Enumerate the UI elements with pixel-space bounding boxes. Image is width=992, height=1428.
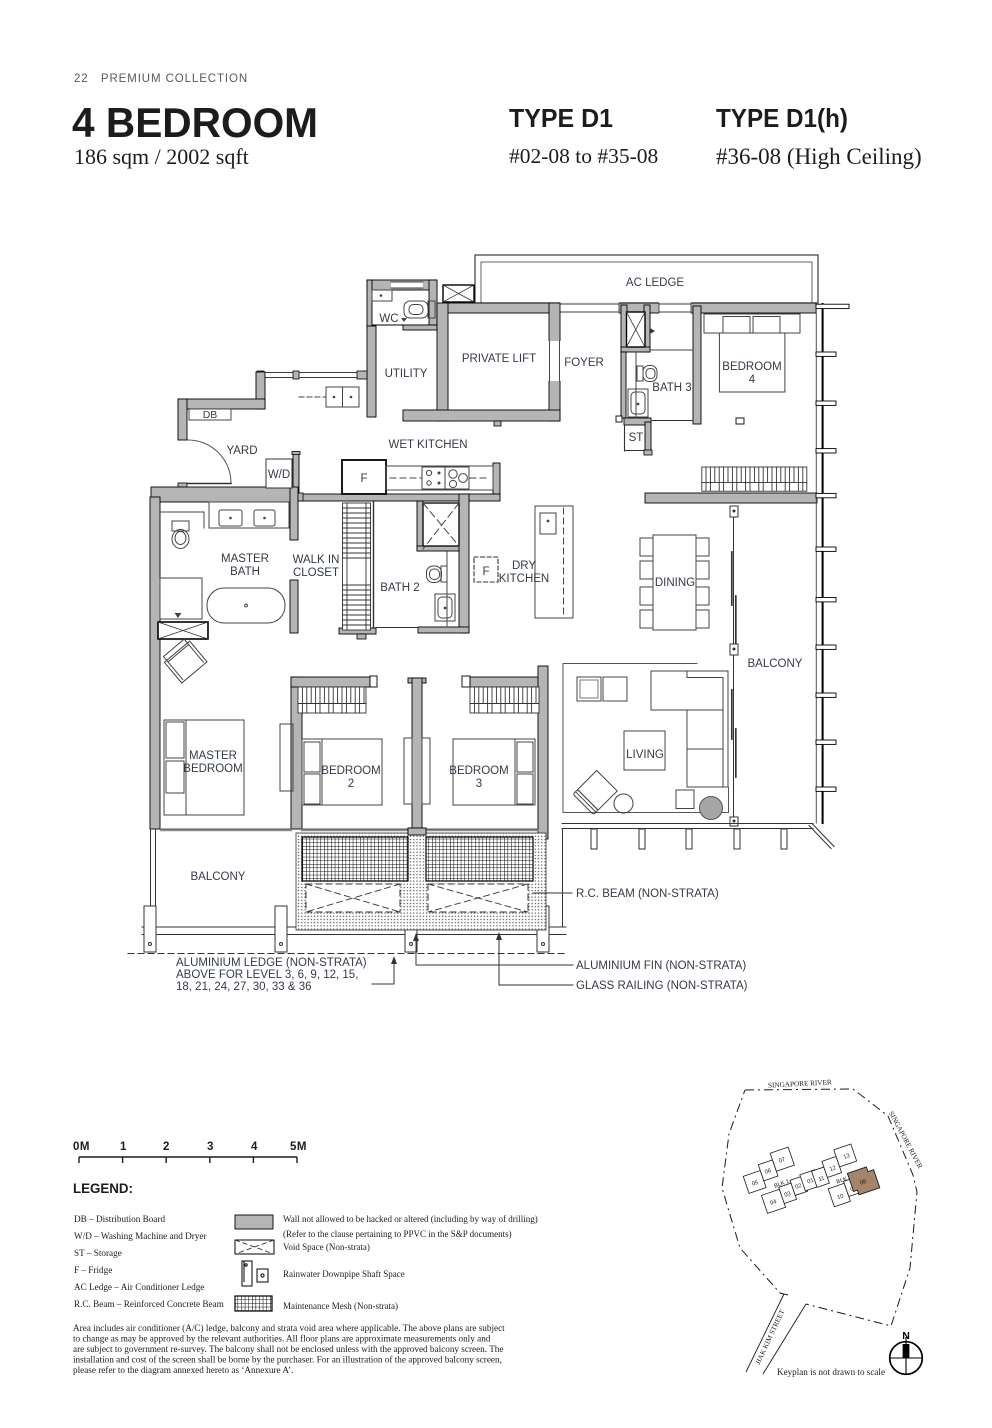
- svg-text:F: F: [360, 473, 367, 485]
- svg-text:WALK IN: WALK IN: [293, 554, 340, 566]
- svg-text:Maintenance Mesh (Non-strata): Maintenance Mesh (Non-strata): [283, 1301, 398, 1311]
- svg-text:Void Space (Non-strata): Void Space (Non-strata): [283, 1242, 370, 1252]
- svg-text:BEDROOM: BEDROOM: [183, 763, 242, 775]
- svg-text:SINGAPORE RIVER: SINGAPORE RIVER: [768, 1078, 832, 1089]
- svg-text:F: F: [482, 566, 489, 578]
- svg-text:DRY: DRY: [512, 560, 536, 572]
- svg-text:ALUMINIUM FIN (NON-STRATA): ALUMINIUM FIN (NON-STRATA): [576, 960, 746, 972]
- svg-text:installation and cost of the s: installation and cost of the screen shal…: [73, 1355, 502, 1365]
- svg-text:DINING: DINING: [655, 577, 695, 589]
- svg-text:BEDROOM: BEDROOM: [321, 765, 380, 777]
- svg-text:BALCONY: BALCONY: [191, 871, 246, 883]
- svg-text:BATH: BATH: [230, 566, 260, 578]
- svg-text:3: 3: [476, 778, 482, 790]
- svg-text:ST – Storage: ST – Storage: [74, 1248, 122, 1258]
- svg-text:4: 4: [749, 374, 756, 386]
- svg-text:MASTER: MASTER: [221, 553, 269, 565]
- svg-text:BATH 2: BATH 2: [380, 582, 419, 594]
- svg-text:W/D: W/D: [268, 469, 290, 481]
- svg-text:ABOVE FOR LEVEL 3, 6, 9, 12, 1: ABOVE FOR LEVEL 3, 6, 9, 12, 15,: [176, 969, 358, 981]
- svg-text:KITCHEN: KITCHEN: [499, 573, 549, 585]
- svg-text:UTILITY: UTILITY: [385, 368, 428, 380]
- svg-text:F – Fridge: F – Fridge: [74, 1265, 112, 1275]
- svg-text:1: 1: [120, 1141, 127, 1153]
- svg-text:to change as may be approved b: to change as may be approved by the rele…: [73, 1334, 491, 1344]
- svg-text:please refer to the diagram an: please refer to the diagram annexed here…: [73, 1365, 293, 1375]
- svg-text:FOYER: FOYER: [564, 357, 604, 369]
- svg-text:are subject to government re-s: are subject to government re-survey. The…: [73, 1344, 503, 1354]
- svg-text:ALUMINIUM LEDGE (NON-STRATA): ALUMINIUM LEDGE (NON-STRATA): [176, 957, 367, 969]
- svg-text:BEDROOM: BEDROOM: [449, 765, 508, 777]
- svg-text:WC: WC: [379, 313, 398, 325]
- svg-text:YARD: YARD: [226, 445, 257, 457]
- svg-text:Keyplan is not drawn to scale: Keyplan is not drawn to scale: [777, 1367, 885, 1377]
- svg-text:(Refer to the clause pertainin: (Refer to the clause pertaining to PPVC …: [283, 1229, 512, 1239]
- svg-text:Rainwater Downpipe Shaft Space: Rainwater Downpipe Shaft Space: [283, 1269, 405, 1279]
- svg-text:0M: 0M: [73, 1141, 90, 1153]
- svg-text:Area includes air conditioner: Area includes air conditioner (A/C) ledg…: [73, 1323, 505, 1333]
- svg-text:LIVING: LIVING: [626, 749, 664, 761]
- svg-text:22 PREMIUM COLLECTION: 22 PREMIUM COLLECTION: [74, 73, 248, 85]
- svg-text:#02-08 to #35-08: #02-08 to #35-08: [509, 144, 658, 168]
- svg-text:R.C. BEAM (NON-STRATA): R.C. BEAM (NON-STRATA): [576, 888, 719, 900]
- svg-text:MASTER: MASTER: [189, 750, 237, 762]
- svg-text:TYPE D1: TYPE D1: [509, 103, 613, 133]
- svg-text:BALCONY: BALCONY: [748, 658, 803, 670]
- svg-text:AC LEDGE: AC LEDGE: [626, 277, 684, 289]
- svg-text:LEGEND:: LEGEND:: [73, 1180, 133, 1196]
- svg-text:#36-08 (High Ceiling): #36-08 (High Ceiling): [716, 144, 922, 169]
- svg-text:3: 3: [207, 1141, 214, 1153]
- svg-text:AC Ledge – Air Conditioner Led: AC Ledge – Air Conditioner Ledge: [74, 1282, 204, 1292]
- svg-text:BEDROOM: BEDROOM: [722, 361, 781, 373]
- svg-text:DB: DB: [203, 409, 218, 421]
- svg-text:TYPE D1(h): TYPE D1(h): [716, 103, 848, 133]
- svg-text:R.C. Beam – Reinforced Concret: R.C. Beam – Reinforced Concrete Beam: [74, 1299, 224, 1309]
- svg-text:BATH 3: BATH 3: [652, 382, 691, 394]
- svg-text:PRIVATE LIFT: PRIVATE LIFT: [462, 353, 536, 365]
- svg-text:DB – Distribution Board: DB – Distribution Board: [74, 1214, 166, 1224]
- svg-text:JIAK KIM STREET: JIAK KIM STREET: [754, 1308, 787, 1366]
- svg-text:N: N: [902, 1330, 910, 1342]
- svg-text:4 BEDROOM: 4 BEDROOM: [72, 99, 318, 146]
- svg-text:ST: ST: [629, 432, 644, 444]
- svg-text:CLOSET: CLOSET: [293, 567, 339, 579]
- svg-text:186 sqm / 2002 sqft: 186 sqm / 2002 sqft: [74, 144, 249, 169]
- svg-text:2: 2: [348, 778, 354, 790]
- svg-text:18, 21, 24, 27, 30, 33 & 36: 18, 21, 24, 27, 30, 33 & 36: [176, 981, 312, 993]
- svg-text:SINGAPORE RIVER: SINGAPORE RIVER: [887, 1110, 924, 1170]
- svg-text:4: 4: [251, 1141, 258, 1153]
- svg-text:5M: 5M: [290, 1141, 307, 1153]
- svg-text:WET KITCHEN: WET KITCHEN: [388, 439, 467, 451]
- svg-text:GLASS RAILING (NON-STRATA): GLASS RAILING (NON-STRATA): [576, 980, 748, 992]
- svg-text:W/D – Washing Machine and Drye: W/D – Washing Machine and Dryer: [74, 1231, 207, 1241]
- svg-text:2: 2: [163, 1141, 170, 1153]
- svg-text:Wall not allowed to be hacked: Wall not allowed to be hacked or altered…: [283, 1214, 538, 1224]
